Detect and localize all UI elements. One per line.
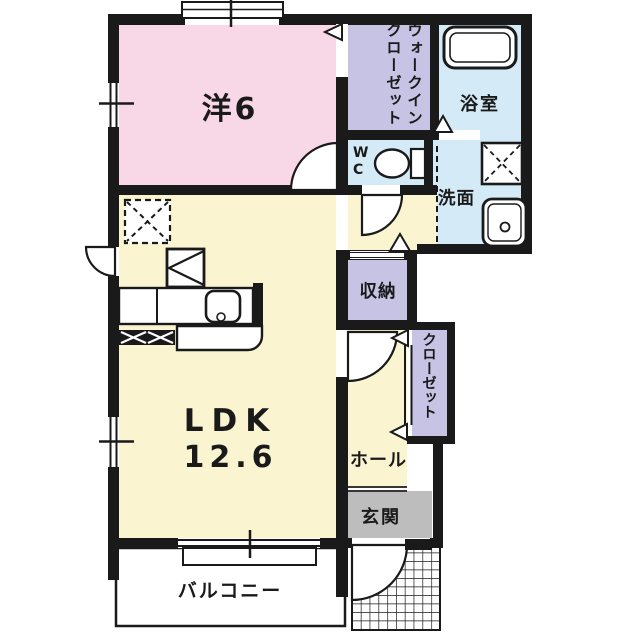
floor-plan: 洋6 LDK 12.6 ウォークインクローゼット 浴室 WC 洗面 収納 クロー… — [0, 0, 640, 640]
back-door-swing — [86, 247, 115, 276]
refrigerator-space-icon — [125, 200, 170, 243]
floor-plan-drawing — [0, 0, 640, 640]
vanity-sink-icon — [483, 199, 526, 246]
entrance-label: 玄関 — [352, 503, 410, 529]
range-space-icon — [167, 249, 204, 287]
balcony-label: バルコニー — [160, 576, 300, 603]
entry-door-panel — [405, 539, 432, 550]
storage-label: 収納 — [349, 278, 407, 303]
washer-space-icon — [482, 143, 522, 184]
ldk-label: LDK — [148, 403, 313, 439]
western-room-label: 洋6 — [190, 84, 270, 128]
ldk-size-label: 12.6 — [148, 440, 313, 475]
closet-door-lines — [405, 345, 412, 425]
washroom-label: 洗面 — [438, 185, 475, 210]
closet-label: クローゼット — [419, 332, 436, 434]
kitchen-counter-icon — [119, 288, 262, 350]
bath-label: 浴室 — [448, 90, 512, 116]
wc-label: WC — [353, 145, 369, 179]
walkin-closet-label: ウォークインクローゼット — [382, 22, 424, 132]
toilet-icon — [375, 149, 425, 178]
ldk-area — [119, 195, 336, 538]
hall-label: ホール — [350, 446, 407, 472]
bathtub-icon — [444, 27, 516, 68]
